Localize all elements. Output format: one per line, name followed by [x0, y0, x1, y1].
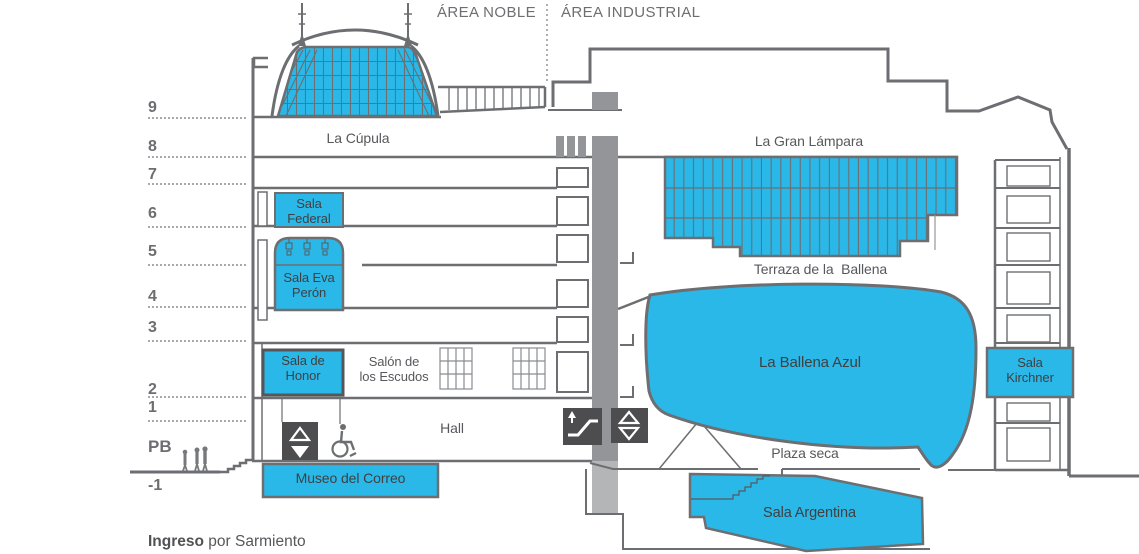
floor-dotted-line: [148, 396, 246, 398]
floor-label-9: 9: [148, 99, 157, 117]
floor-dotted-line: [148, 183, 246, 185]
room-label-ballena-azul: La Ballena Azul: [730, 355, 890, 372]
floor-label-8: 8: [148, 138, 157, 156]
pb-elevator-icon: [282, 398, 318, 460]
room-label-plaza-seca: Plaza seca: [755, 446, 855, 462]
room-label-sala-federal: Sala Federal: [275, 197, 343, 226]
core-landing-brackets: [620, 252, 633, 397]
entrance-label: Ingreso por Sarmiento: [148, 533, 306, 551]
floor-dotted-line: [148, 117, 246, 119]
floor-dotted-line: [148, 226, 246, 228]
wheelchair-icon: [333, 397, 357, 457]
floor-dotted-line: [148, 156, 246, 158]
entrance-label-bold: Ingreso: [148, 533, 204, 550]
building-section-diagram: ÁREA NOBLE ÁREA INDUSTRIAL 9 8 7 6 5 4 3…: [0, 0, 1139, 554]
entrance-label-rest: por Sarmiento: [204, 533, 306, 550]
floor-dotted-line: [148, 340, 246, 342]
room-label-sala-de-honor: Sala de Honor: [263, 354, 343, 383]
escudos-windows: [440, 348, 545, 389]
floor-label-7: 7: [148, 166, 157, 184]
room-label-salon-escudos: Salón de los Escudos: [346, 355, 442, 384]
room-label-gran-lampara: La Gran Lámpara: [728, 134, 890, 150]
street-and-stairs: [130, 460, 253, 472]
people-icon: [183, 446, 208, 471]
room-label-la-cupula: La Cúpula: [298, 131, 418, 147]
floor-label-pb: PB: [148, 437, 172, 457]
floor-dotted-line: [148, 306, 246, 308]
dome-spire-icon: [298, 3, 412, 46]
floor-label-4: 4: [148, 288, 157, 306]
floor-dotted-line: [148, 420, 246, 422]
tower-windows: [1007, 166, 1050, 461]
stepped-roof: [438, 87, 545, 112]
floor-label-1: 1: [148, 399, 157, 417]
room-label-sala-kirchner: Sala Kirchner: [987, 356, 1073, 385]
room-label-terraza-ballena: Terraza de la Ballena: [728, 262, 913, 278]
area-industrial-label: ÁREA INDUSTRIAL: [561, 4, 741, 21]
area-noble-label: ÁREA NOBLE: [416, 4, 536, 21]
room-label-sala-eva-peron: Sala Eva Perón: [271, 271, 347, 300]
ballena-azul-shape: [618, 284, 976, 469]
gran-lampara-shape: [665, 157, 957, 256]
escalator-icon: [563, 408, 602, 445]
floor-label-minus1: -1: [148, 477, 162, 495]
floor-label-6: 6: [148, 205, 157, 223]
room-label-sala-argentina: Sala Argentina: [732, 505, 887, 521]
section-drawing: [0, 0, 1139, 554]
dome-shape: [272, 3, 438, 116]
floor-label-3: 3: [148, 319, 157, 337]
floor-dotted-line: [148, 264, 246, 266]
core-elevator-boxes: [557, 168, 588, 392]
room-label-hall: Hall: [420, 421, 484, 437]
room-label-museo-correo: Museo del Correo: [263, 471, 438, 487]
floor-label-5: 5: [148, 243, 157, 261]
right-tower: [995, 157, 1069, 470]
hall-elevator-icon: [611, 408, 648, 443]
